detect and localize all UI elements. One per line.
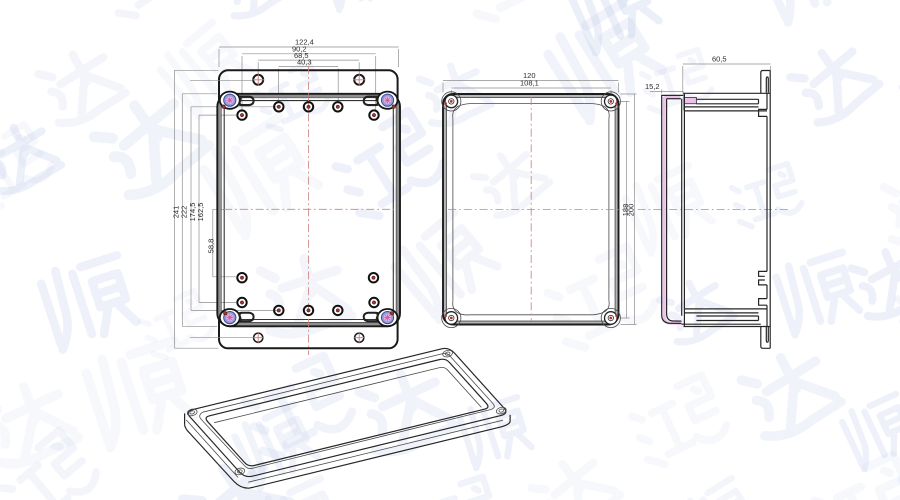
svg-text:15,2: 15,2 [645, 82, 660, 91]
svg-text:40,3: 40,3 [297, 58, 312, 67]
svg-text:60,5: 60,5 [712, 55, 727, 64]
svg-text:200: 200 [627, 204, 636, 217]
svg-text:162,5: 162,5 [196, 203, 205, 222]
svg-text:222: 222 [179, 206, 188, 219]
svg-text:108,1: 108,1 [520, 79, 539, 88]
svg-text:58,8: 58,8 [207, 239, 216, 254]
